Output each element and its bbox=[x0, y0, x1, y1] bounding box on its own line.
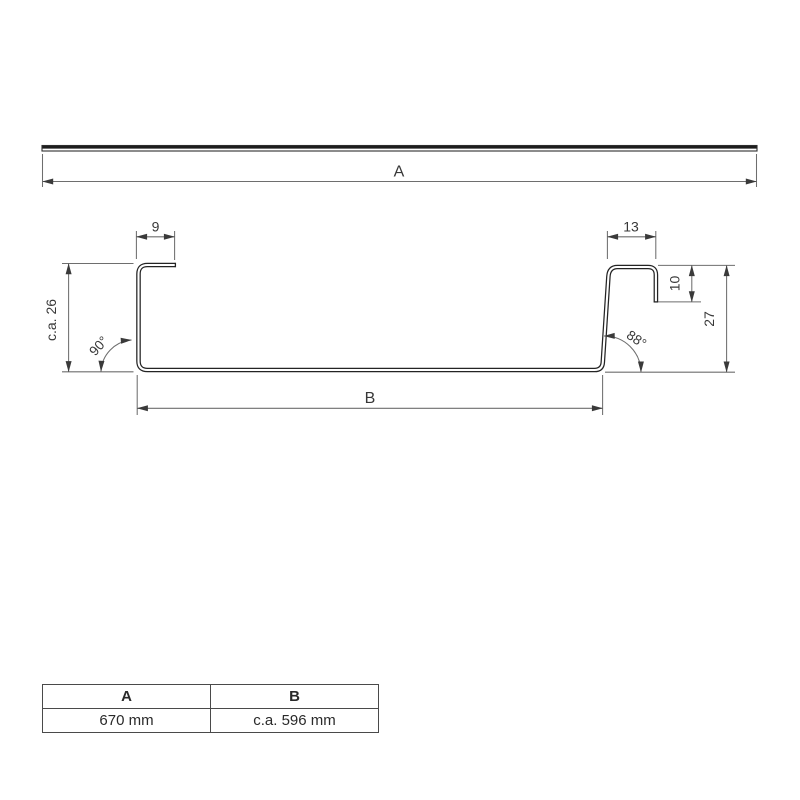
angle-90: 90° bbox=[86, 333, 131, 371]
dimension-table: A B 670 mm c.a. 596 mm bbox=[42, 684, 379, 733]
profile-cross-section bbox=[139, 263, 659, 370]
dim-13-label: 13 bbox=[623, 219, 639, 235]
table-header-a: A bbox=[43, 685, 211, 709]
dim-9-label: 9 bbox=[152, 219, 160, 235]
dim-27-label: 27 bbox=[701, 311, 717, 327]
sheet-front-view bbox=[42, 146, 757, 152]
profile-material-core bbox=[139, 265, 656, 370]
dim-ca26-label: c.a. 26 bbox=[43, 299, 59, 341]
angle-88-label: 88° bbox=[624, 327, 649, 351]
dim-10-label: 10 bbox=[667, 276, 683, 292]
table-header-row: A B bbox=[43, 685, 379, 709]
profile-outline bbox=[139, 265, 656, 370]
dimension-a: A bbox=[43, 154, 757, 187]
dim-b-label: B bbox=[365, 390, 376, 407]
angle-88: 88° bbox=[604, 327, 649, 372]
table-value-a: 670 mm bbox=[43, 709, 211, 733]
dimension-ca26: c.a. 26 bbox=[43, 264, 134, 372]
dimension-13: 13 bbox=[607, 219, 655, 260]
table-value-b: c.a. 596 mm bbox=[211, 709, 379, 733]
technical-drawing-page: A 9 13 c.a. 26 bbox=[0, 0, 800, 800]
dimension-b: B bbox=[137, 375, 602, 415]
dimension-9: 9 bbox=[136, 219, 174, 261]
angle-90-label: 90° bbox=[86, 333, 111, 358]
table-row: 670 mm c.a. 596 mm bbox=[43, 709, 379, 733]
dimension-10: 10 bbox=[658, 265, 735, 302]
dim-a-label: A bbox=[394, 164, 405, 181]
profile-drawing-svg: A 9 13 c.a. 26 bbox=[0, 0, 800, 800]
table-header-b: B bbox=[211, 685, 379, 709]
